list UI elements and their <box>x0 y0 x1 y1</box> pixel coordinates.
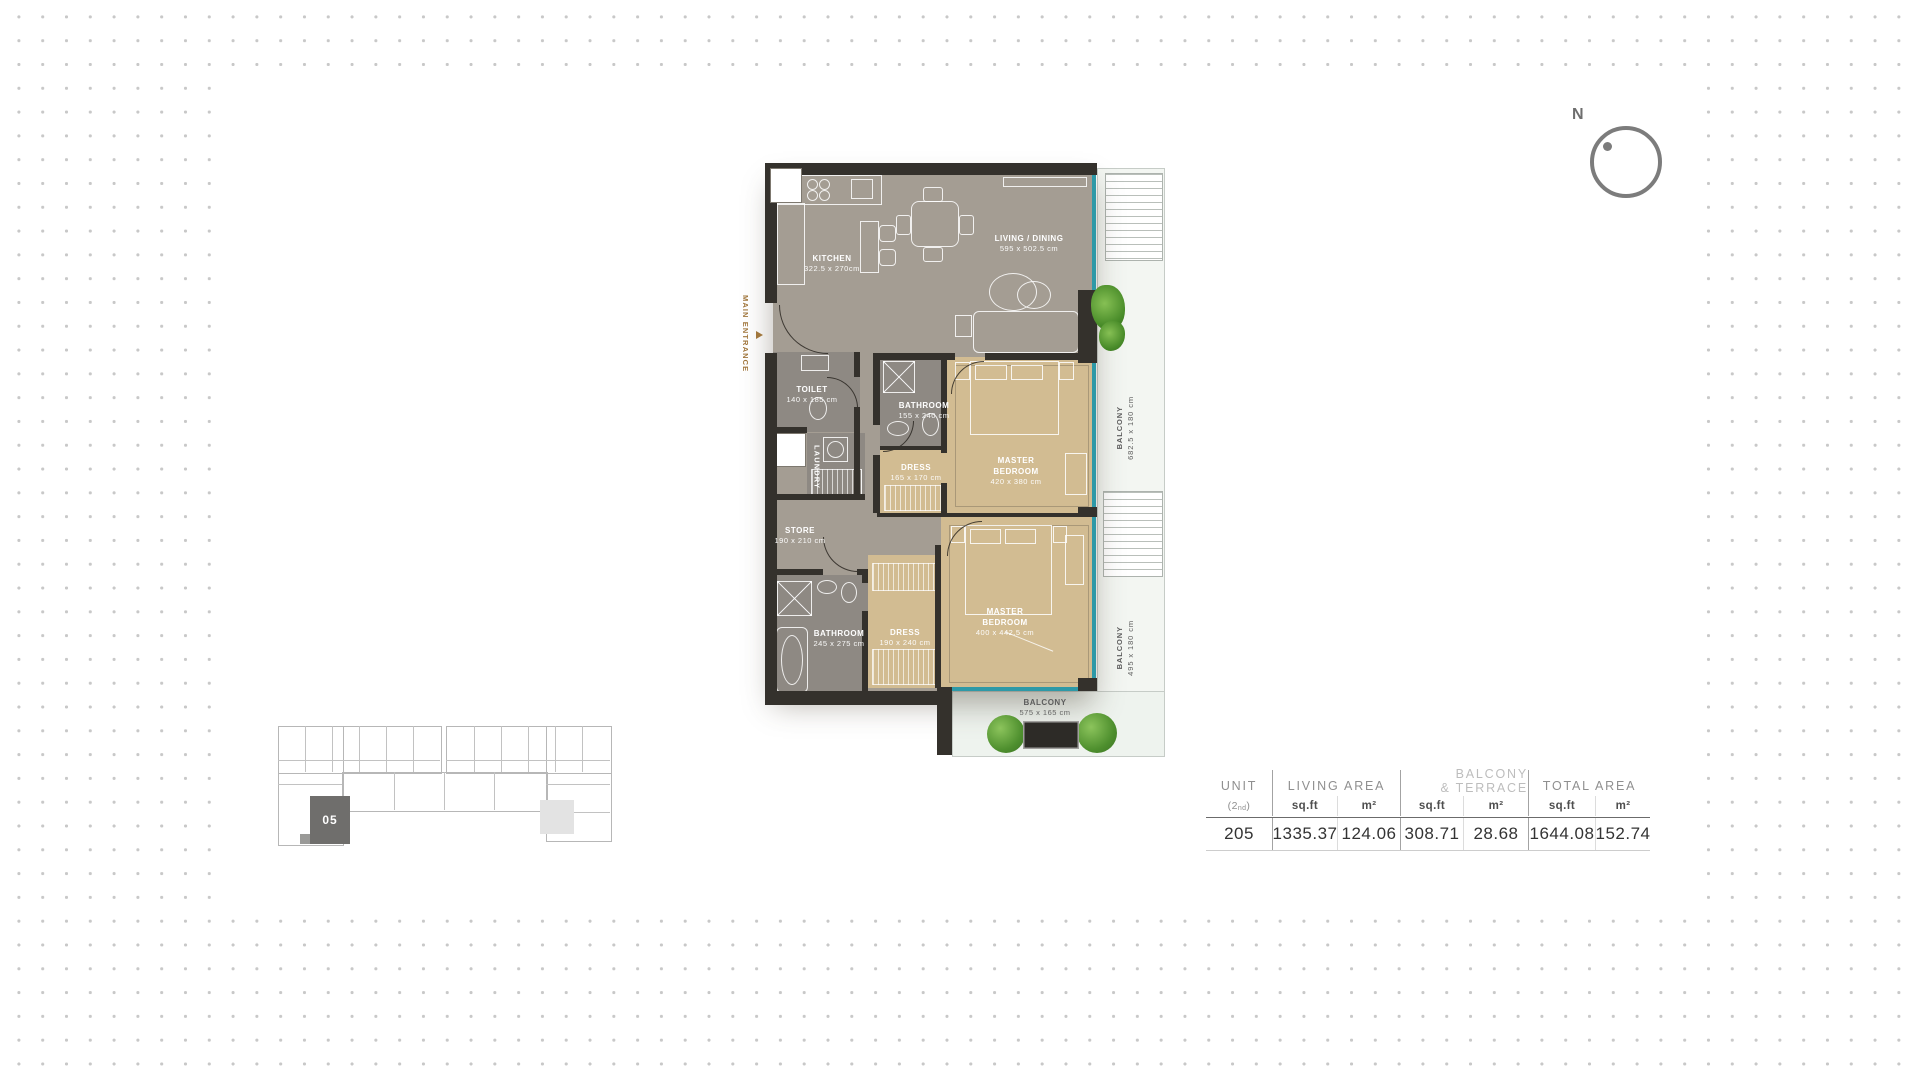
footprint-divider <box>305 726 306 772</box>
footprint-divider <box>474 726 475 772</box>
room-dims: 575 x 165 cm <box>1005 708 1085 719</box>
footprint-divider <box>446 760 610 761</box>
living-m2-header: m² <box>1337 796 1400 816</box>
burner-icon <box>819 190 830 201</box>
louver-vent-icon <box>1103 491 1163 577</box>
washer-drum-icon <box>827 441 844 458</box>
compass-icon <box>1590 126 1662 198</box>
footprint-divider <box>359 726 360 772</box>
room-label-dress-lower: DRESS 190 x 240 cm <box>855 627 955 649</box>
side-table-icon <box>955 315 972 337</box>
pillow-icon <box>1011 365 1043 380</box>
room-dims: 322.5 x 270cm <box>782 264 882 275</box>
room-name: STORE <box>755 525 845 536</box>
floor-open: (2 <box>1228 800 1238 812</box>
room-name: BALCONY <box>1115 626 1124 669</box>
entrance-arrow-icon <box>756 331 763 339</box>
footprint-divider <box>501 726 502 772</box>
footprint-divider <box>555 726 556 772</box>
living-m2-cell: 124.06 <box>1337 818 1400 850</box>
room-label-master-lower: MASTER BEDROOM 400 x 442.5 cm <box>955 606 1055 639</box>
wall-segment <box>880 446 941 450</box>
room-name: LIVING / DINING <box>979 233 1079 244</box>
table-bottom-rule <box>1206 850 1650 851</box>
pillow-icon <box>1005 529 1036 544</box>
chaise-icon <box>1065 535 1084 585</box>
room-label-balcony-bottom: BALCONY 575 x 165 cm <box>1005 697 1085 719</box>
sink-icon <box>817 580 837 594</box>
col-living-area-title: LIVING AREA <box>1272 770 1400 796</box>
bench-icon <box>1023 721 1079 749</box>
total-sqft-header: sq.ft <box>1528 796 1595 816</box>
chair-icon <box>923 187 943 202</box>
footprint-divider <box>444 772 445 810</box>
room-name: TOILET <box>770 384 854 395</box>
room-label-living: LIVING / DINING 595 x 502.5 cm <box>979 233 1079 255</box>
room-dims: 420 x 380 cm <box>966 477 1066 488</box>
wall-segment <box>1078 353 1097 363</box>
room-dims: 190 x 210 cm <box>755 536 845 547</box>
room-name: DRESS <box>866 462 966 473</box>
stool-icon <box>879 225 896 242</box>
room-dims: 140 x 185 cm <box>770 395 854 406</box>
room-label-balcony-side-upper: BALCONY 682.5 x 180 cm <box>1115 368 1135 488</box>
living-sqft-header: sq.ft <box>1272 796 1337 816</box>
wc-icon <box>841 582 857 603</box>
footprint-divider <box>386 726 387 772</box>
wall-segment <box>941 513 1093 517</box>
kitchen-sink-icon <box>851 179 873 199</box>
unit-05-label: 05 <box>322 813 337 827</box>
wall-segment <box>857 569 868 575</box>
chair-icon <box>896 215 911 235</box>
room-name: MASTER BEDROOM <box>973 606 1037 628</box>
room-dims: 682.5 x 180 cm <box>1126 396 1135 460</box>
wardrobe-icon <box>872 563 938 591</box>
burner-icon <box>807 190 818 201</box>
room-name: BATHROOM <box>874 400 974 411</box>
shaft-icon <box>770 168 802 203</box>
footprint-divider <box>494 772 495 810</box>
room-label-store: STORE 190 x 210 cm <box>755 525 845 547</box>
wall-segment <box>854 407 860 500</box>
shower-icon <box>883 361 915 393</box>
footprint-divider <box>582 726 583 772</box>
plant-icon <box>1077 713 1117 753</box>
room-label-bathroom-upper: BATHROOM 155 x 240 cm <box>874 400 974 422</box>
burner-icon <box>807 179 818 190</box>
compass-dot-icon <box>1603 142 1612 151</box>
footprint-divider <box>332 726 333 772</box>
wall-segment <box>862 611 868 700</box>
room-name: KITCHEN <box>782 253 882 264</box>
total-m2-header: m² <box>1595 796 1650 816</box>
living-sqft-cell: 1335.37 <box>1272 818 1337 850</box>
wall-segment <box>1078 507 1097 517</box>
shower-icon <box>777 581 812 616</box>
page-background: N <box>0 0 1920 1078</box>
sofa-icon <box>973 311 1079 353</box>
wall-segment <box>862 575 868 583</box>
balcony-terrace-line2: & TERRACE <box>1440 782 1528 796</box>
col-balcony-terrace-title: BALCONY & TERRACE <box>1400 770 1528 796</box>
room-label-master-upper: MASTER BEDROOM 420 x 380 cm <box>966 455 1066 488</box>
plant-icon <box>987 715 1025 753</box>
area-table: UNIT LIVING AREA BALCONY & TERRACE TOTAL… <box>1206 770 1650 851</box>
wall-segment <box>1078 678 1097 691</box>
room-dims: 165 x 170 cm <box>866 473 966 484</box>
sink-icon <box>801 355 829 371</box>
unit-05-tab <box>300 834 310 844</box>
footprint-divider <box>413 726 414 772</box>
chair-icon <box>959 215 974 235</box>
total-sqft-cell: 1644.08 <box>1528 818 1595 850</box>
wardrobe-icon <box>872 649 938 685</box>
room-label-laundry: LAUNDRY <box>811 439 822 495</box>
wardrobe-icon <box>884 485 945 511</box>
footprint-shaded-unit <box>540 800 574 834</box>
dining-table-icon <box>911 201 959 247</box>
room-dims: 400 x 442.5 cm <box>955 628 1055 639</box>
building-footprint-map: 05 <box>276 722 612 846</box>
room-dims: 190 x 240 cm <box>855 638 955 649</box>
room-label-kitchen: KITCHEN 322.5 x 270cm <box>782 253 882 275</box>
footprint-divider <box>278 760 440 761</box>
main-entrance-label: MAIN ENTRANCE <box>741 295 750 405</box>
balcony-terrace-line1: BALCONY <box>1456 768 1528 782</box>
coffee-table-icon <box>1017 281 1051 309</box>
unit-number-cell: 205 <box>1206 818 1272 850</box>
room-dims: 495 x 180 cm <box>1126 620 1135 676</box>
footprint-block <box>342 772 548 812</box>
compass-north-label: N <box>1572 106 1584 124</box>
wall-segment <box>877 513 941 517</box>
room-label-toilet: TOILET 140 x 185 cm <box>770 384 854 406</box>
nightstand-icon <box>1059 362 1074 380</box>
dresser-icon <box>1065 453 1087 495</box>
room-label-dress-upper: DRESS 165 x 170 cm <box>866 462 966 484</box>
wall-segment <box>854 352 860 377</box>
louver-vent-icon <box>1105 173 1163 261</box>
floor-plan: KITCHEN 322.5 x 270cm LIVING / DINING 59… <box>765 163 1165 758</box>
room-label-balcony-side-lower: BALCONY 495 x 180 cm <box>1115 588 1135 708</box>
wall-segment <box>937 687 952 755</box>
balcony-sqft-cell: 308.71 <box>1400 818 1463 850</box>
wall-segment <box>773 569 823 575</box>
col-total-area-title: TOTAL AREA <box>1528 770 1650 796</box>
window-glass <box>952 687 1093 691</box>
unit-05-block: 05 <box>310 796 350 844</box>
balcony-m2-cell: 28.68 <box>1463 818 1528 850</box>
wall-segment <box>985 353 1093 360</box>
burner-icon <box>819 179 830 190</box>
balcony-m2-header: m² <box>1463 796 1528 816</box>
room-name: BALCONY <box>1005 697 1085 708</box>
room-name: MASTER BEDROOM <box>984 455 1048 477</box>
room-name: BALCONY <box>1115 406 1124 449</box>
window-glass <box>1092 171 1096 292</box>
floor-sup: nd <box>1238 805 1247 812</box>
total-m2-cell: 152.74 <box>1595 818 1650 850</box>
wall-segment <box>773 427 807 433</box>
footprint-divider <box>278 784 342 785</box>
wall-segment <box>765 691 952 705</box>
col-unit-title: UNIT <box>1206 770 1272 796</box>
wall-segment <box>941 483 947 513</box>
room-dims: 155 x 240 cm <box>874 411 974 422</box>
wall-segment <box>935 545 941 688</box>
wall-segment <box>765 163 1097 175</box>
tv-console-icon <box>1003 177 1087 187</box>
window-glass <box>1092 360 1096 688</box>
chair-icon <box>923 247 943 262</box>
footprint-divider <box>546 784 610 785</box>
balcony-sqft-header: sq.ft <box>1400 796 1463 816</box>
footprint-divider <box>528 726 529 772</box>
footprint-divider <box>394 772 395 810</box>
room-dims: 595 x 502.5 cm <box>979 244 1079 255</box>
room-name: DRESS <box>855 627 955 638</box>
floor-close: ) <box>1246 800 1250 812</box>
unit-floor-label: (2nd) <box>1206 796 1272 816</box>
